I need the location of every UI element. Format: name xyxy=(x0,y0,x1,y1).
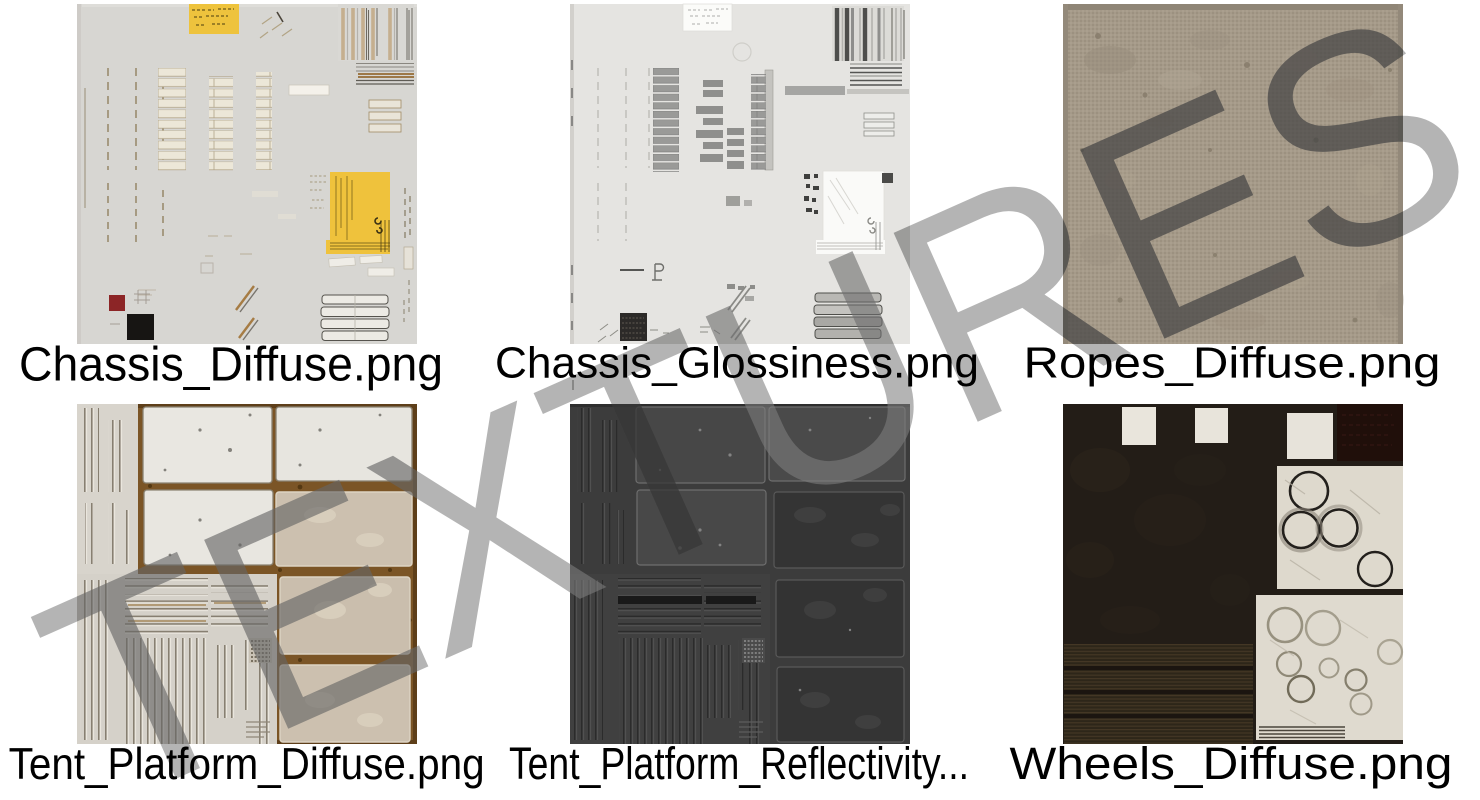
svg-text:Tent_Platform_Diffuse.png: Tent_Platform_Diffuse.png xyxy=(9,740,485,789)
svg-text:Ropes_Diffuse.png: Ropes_Diffuse.png xyxy=(1024,339,1441,388)
svg-text:Wheels_Diffuse.png: Wheels_Diffuse.png xyxy=(1010,738,1453,789)
svg-text:Tent_Platform_Reflectivity...: Tent_Platform_Reflectivity... xyxy=(509,738,969,789)
svg-text:Chassis_Glossiness.png: Chassis_Glossiness.png xyxy=(495,339,979,388)
svg-text:Chassis_Diffuse.png: Chassis_Diffuse.png xyxy=(19,339,443,392)
